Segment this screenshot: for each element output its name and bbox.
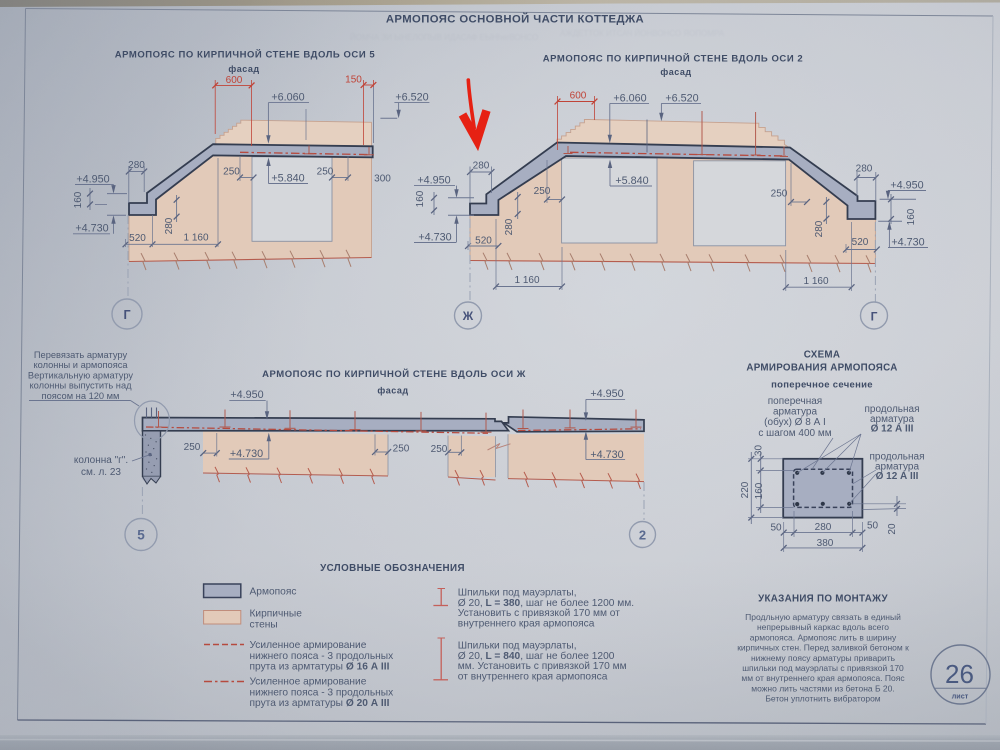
svg-text:Ж: Ж [462,311,474,323]
svg-text:+5.840: +5.840 [615,175,648,187]
svg-text:+4.730: +4.730 [230,448,263,460]
svg-text:Перевязать арматуру: Перевязать арматуру [34,350,128,360]
svg-text:колонны выпустить над: колонны выпустить над [29,381,132,391]
svg-text:прута из армтатуры Ø 20 А III: прута из армтатуры Ø 20 А III [250,698,390,709]
svg-text:520: 520 [852,237,869,248]
svg-text:УКАЗАНИЯ ПО МОНТАЖУ: УКАЗАНИЯ ПО МОНТАЖУ [758,594,888,605]
svg-text:250: 250 [534,186,551,197]
svg-text:Ø 12 А III: Ø 12 А III [876,471,919,482]
svg-text:(обух) Ø 8 А I: (обух) Ø 8 А I [764,416,826,428]
svg-text:Ø 12 А III: Ø 12 А III [871,424,914,435]
svg-text:160: 160 [906,208,917,225]
svg-text:250: 250 [223,167,240,178]
svg-text:фасад: фасад [228,64,259,74]
svg-text:250: 250 [431,444,448,455]
svg-text:5: 5 [137,528,145,543]
svg-text:+4.730: +4.730 [75,223,108,235]
svg-text:160: 160 [754,482,765,499]
svg-text:АЖДЕТТОК ИТСАЧ ЙОНВОНСО ЯОПОМР: АЖДЕТТОК ИТСАЧ ЙОНВОНСО ЯОПОМРА [560,29,725,38]
svg-text:непрерывный каркас вдоль всего: непрерывный каркас вдоль всего [757,622,889,632]
svg-text:шпильки под мауэрлаты с привяз: шпильки под мауэрлаты с привязкой 170 [742,663,904,673]
svg-text:2: 2 [639,528,646,543]
svg-text:220: 220 [740,481,751,498]
svg-text:АРМОПОЯС ПО КИРПИЧНОЙ СТЕНЕ ВД: АРМОПОЯС ПО КИРПИЧНОЙ СТЕНЕ ВДОЛЬ ОСИ Ж [262,368,526,380]
svg-text:280: 280 [815,522,832,533]
svg-text:280: 280 [504,218,515,235]
svg-text:Ø 20, L = 840, шаг не более 12: Ø 20, L = 840, шаг не более 1200 [458,650,615,662]
svg-text:+6.520: +6.520 [665,92,698,104]
svg-text:мм от внутреннего края армопоя: мм от внутреннего края армопояса. Пояс [741,673,905,683]
svg-text:Шпильки под мауэрлаты,: Шпильки под мауэрлаты, [458,641,577,652]
svg-text:+6.520: +6.520 [395,92,428,104]
svg-text:160: 160 [415,190,426,207]
svg-text:лист: лист [952,692,969,701]
svg-text:поясом на 120 мм: поясом на 120 мм [42,391,120,401]
svg-text:+6.060: +6.060 [271,92,304,104]
svg-text:внутреннего края армопояса: внутреннего края армопояса [458,619,595,630]
svg-text:Вертикальную арматуру: Вертикальную арматуру [28,370,134,380]
svg-text:нижнему поясу арматуры привари: нижнему поясу арматуры приварить [751,653,896,663]
svg-text:+4.730: +4.730 [590,449,623,461]
svg-text:Г: Г [871,310,878,324]
svg-text:250: 250 [184,442,201,453]
svg-text:+5.840: +5.840 [271,172,304,184]
svg-text:20: 20 [887,523,898,535]
svg-text:1 160: 1 160 [183,233,208,244]
svg-text:поперечная: поперечная [768,396,822,407]
svg-text:280: 280 [856,164,873,175]
svg-text:можно лить частями из бетона Б: можно лить частями из бетона Б 20. [751,683,894,693]
svg-text:1 160: 1 160 [514,275,539,286]
svg-text:+4.730: +4.730 [418,231,451,243]
svg-text:300: 300 [374,174,391,185]
svg-text:50: 50 [867,521,879,532]
svg-text:Шпильки под мауэрлаты,: Шпильки под мауэрлаты, [458,588,577,599]
svg-text:Кирпичные: Кирпичные [250,609,303,620]
svg-text:250: 250 [771,189,788,200]
svg-text:+4.950: +4.950 [890,179,923,191]
svg-text:нижнего пояса - 3 продольных: нижнего пояса - 3 продольных [250,687,394,698]
svg-text:Бетон уплотнить вибратором: Бетон уплотнить вибратором [765,694,880,704]
svg-text:280: 280 [164,217,175,234]
svg-text:АРМОПОЯС ПО КИРПИЧНОЙ СТЕНЕ ВД: АРМОПОЯС ПО КИРПИЧНОЙ СТЕНЕ ВДОЛЬ ОСИ 2 [543,53,804,65]
svg-text:250: 250 [393,444,410,455]
svg-text:Армопояс: Армопояс [250,587,297,598]
svg-text:АРМОПОЯС ПО КИРПИЧНОЙ СТЕНЕ ВД: АРМОПОЯС ПО КИРПИЧНОЙ СТЕНЕ ВДОЛЬ ОСИ 5 [115,49,376,61]
svg-text:+6.060: +6.060 [613,92,646,104]
svg-text:стены: стены [250,620,278,631]
svg-text:Усиленное армирование: Усиленное армирование [250,640,367,651]
svg-text:армопояса. Армопояс лить в шир: армопояса. Армопояс лить в ширину [750,632,897,642]
svg-text:нижнего пояса - 3 продольных: нижнего пояса - 3 продольных [250,651,394,662]
svg-text:280: 280 [473,161,490,172]
svg-text:Ø 20, L = 380, шаг не более 12: Ø 20, L = 380, шаг не более 1200 мм. [458,597,634,609]
svg-text:колонны и армопояса: колонны и армопояса [33,360,128,370]
svg-text:26: 26 [945,659,974,689]
svg-text:250: 250 [317,167,334,178]
svg-text:+4.730: +4.730 [891,236,924,248]
svg-text:520: 520 [475,235,492,246]
svg-text:колонна "г".: колонна "г". [74,455,128,466]
svg-text:АРМИРОВАНИЯ АРМОПОЯСА: АРМИРОВАНИЯ АРМОПОЯСА [746,363,897,374]
svg-text:арматура: арматура [773,407,817,418]
svg-text:150: 150 [345,75,362,86]
svg-text:520: 520 [129,233,146,244]
svg-text:АРМОПОЯС ОСНОВНОЙ ЧАСТИ КОТТЕД: АРМОПОЯС ОСНОВНОЙ ЧАСТИ КОТТЕДЖА [386,13,644,26]
svg-text:Усиленное армирование: Усиленное армирование [250,677,367,688]
svg-text:160: 160 [73,191,84,208]
svg-text:600: 600 [226,75,243,86]
svg-text:прута из армтатуры Ø 16 А III: прута из армтатуры Ø 16 А III [250,662,390,673]
svg-text:+4.950: +4.950 [76,173,109,185]
svg-text:СХЕМА: СХЕМА [804,350,841,361]
svg-text:30: 30 [754,445,765,457]
svg-text:Продльную арматуру связать в е: Продльную арматуру связать в единый [745,612,901,622]
svg-text:фасад: фасад [660,67,691,77]
svg-text:поперечное сечение: поперечное сечение [771,380,873,391]
svg-text:280: 280 [814,220,825,237]
svg-text:+4.950: +4.950 [230,389,263,401]
svg-text:+4.950: +4.950 [417,174,450,186]
svg-text:+4.950: +4.950 [590,388,623,400]
svg-text:УСЛОВНЫЕ ОБОЗНАЧЕНИЯ: УСЛОВНЫЕ ОБОЗНАЧЕНИЯ [320,563,465,574]
svg-text:1 160: 1 160 [803,276,828,287]
svg-text:50: 50 [770,522,782,533]
svg-text:380: 380 [817,538,834,549]
svg-text:от внутреннего края армопояса: от внутреннего края армопояса [458,672,608,683]
svg-text:Г: Г [123,308,130,322]
svg-text:ЙОМЧА ЗИ ЫНЕЛОПЫВ ИДАСАФ ЕЫНhe: ЙОМЧА ЗИ ЫНЕЛОПЫВ ИДАСАФ ЕЫНherВОНСО [350,33,538,42]
svg-text:600: 600 [570,91,587,102]
svg-text:см. л. 23: см. л. 23 [81,467,121,478]
svg-text:с шагом 400 мм: с шагом 400 мм [758,428,831,439]
svg-text:фасад: фасад [377,386,408,396]
svg-text:кирпичных стен. Перед заливкой: кирпичных стен. Перед заливкой бетоном к [737,643,909,653]
